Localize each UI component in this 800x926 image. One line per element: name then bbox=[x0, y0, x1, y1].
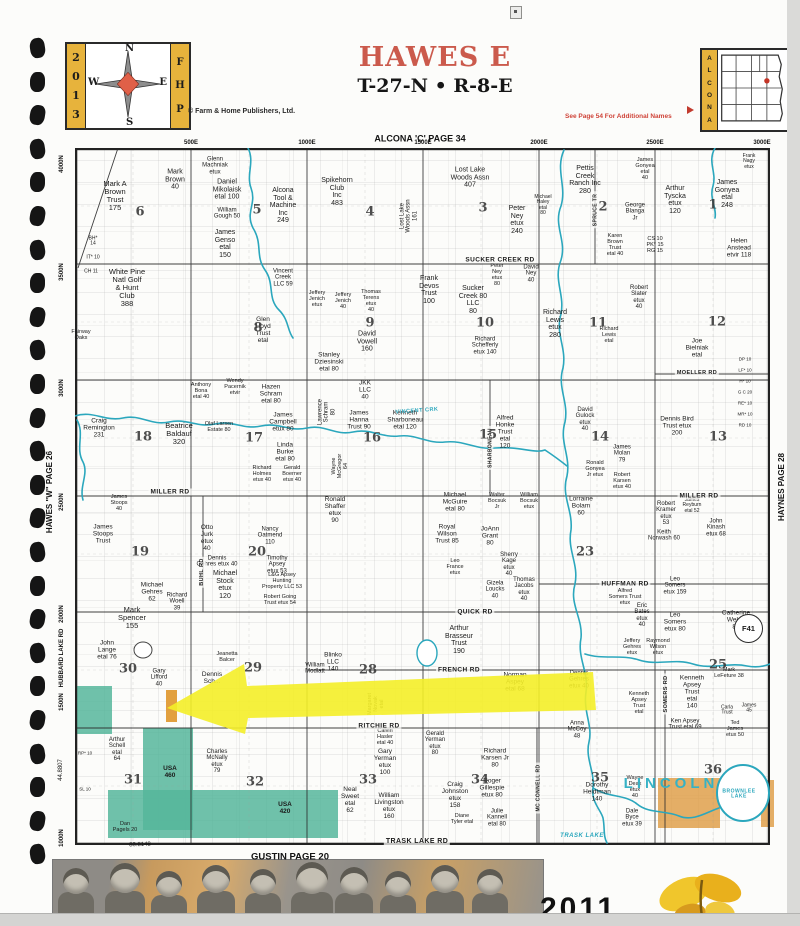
section-number: 8 bbox=[253, 321, 262, 336]
parcel-label: JeanettaBalcer bbox=[216, 652, 237, 664]
parcel-label: DanPagels 20 bbox=[113, 822, 137, 834]
binding-hole bbox=[30, 72, 45, 92]
road-label: FRENCH RD bbox=[436, 666, 482, 673]
map-labels-layer: GlennMachniaketuxMarkBrown40Mark ABrownT… bbox=[75, 148, 770, 845]
parcel-label: GaryLifford40 bbox=[151, 668, 168, 687]
parcel-label: MichaelHaleyetal80 bbox=[534, 195, 551, 217]
township-location-dot bbox=[764, 78, 769, 83]
section-number: 31 bbox=[124, 773, 142, 788]
parcel-label: DennisGehresetux 40 bbox=[569, 670, 589, 689]
county-locator: ALCONA bbox=[700, 48, 792, 132]
section-number: 19 bbox=[131, 545, 149, 560]
section-number: 4 bbox=[365, 205, 374, 220]
binding-hole bbox=[29, 642, 47, 664]
section-number: 25 bbox=[709, 658, 727, 673]
map-edge-label: 83.8148 bbox=[129, 842, 151, 849]
section-number: 5 bbox=[252, 203, 261, 218]
section-number: 3 bbox=[478, 201, 487, 216]
parcel-label: KarenBrownTrustetal 40 bbox=[607, 234, 624, 258]
parcel-label: L&G ApseyHuntingProperty LLC 53 bbox=[262, 573, 302, 591]
binding-hole bbox=[30, 777, 45, 797]
parcel-label: AnnaMcCoy48 bbox=[568, 720, 587, 739]
map-edge-label: 1000E bbox=[298, 140, 315, 146]
parcel-label: NealSweetetal62 bbox=[341, 786, 359, 814]
parcel-label: MarkSpencer155 bbox=[118, 606, 146, 630]
person-figure bbox=[340, 867, 368, 895]
parcel-label: DP 10 bbox=[739, 358, 751, 363]
township-range: T-27-N • R-8-E bbox=[320, 75, 550, 97]
parcel-label: JamesStoops40 bbox=[110, 495, 127, 513]
binding-hole bbox=[29, 104, 47, 126]
parcel-label: CarlaTrust bbox=[721, 706, 733, 717]
compass-n: N bbox=[125, 43, 134, 54]
map-edge-label: HAWES "W" PAGE 26 bbox=[46, 451, 54, 533]
parcel-label: LF* 10 bbox=[738, 369, 751, 374]
locator-pointer-icon bbox=[687, 106, 694, 114]
parcel-label: JoeBielniaketal bbox=[686, 337, 709, 358]
scan-artifact bbox=[510, 6, 522, 19]
section-number: 13 bbox=[709, 430, 727, 445]
parcel-label: KeithNorwash 60 bbox=[648, 530, 680, 543]
person-figure bbox=[385, 871, 411, 897]
parcel-label: GeorgeBlangaJr bbox=[625, 202, 645, 221]
parcel-label: MichaelStocketux120 bbox=[213, 570, 237, 600]
map-edge-label: 3000N bbox=[59, 379, 65, 397]
parcel-label: RichardSchefferlyetux 140 bbox=[472, 336, 499, 355]
road-label: MILLER RD bbox=[149, 488, 192, 495]
parcel-label: JohnKinashetux 68 bbox=[706, 518, 726, 537]
parcel-label: MR* 10 bbox=[737, 413, 752, 418]
parcel-label: RoyalWilsonTrust 85 bbox=[435, 523, 459, 544]
map-edge-label: 2500N bbox=[59, 493, 65, 511]
parcel-label: HazenSchrametal 80 bbox=[260, 383, 282, 404]
road-label: RITCHIE RD bbox=[356, 722, 401, 729]
section-number: 15 bbox=[479, 428, 497, 443]
parcel-label: BlinkoLLC140 bbox=[324, 651, 342, 672]
section-number: 11 bbox=[589, 316, 607, 331]
parcel-label: CraigRemington231 bbox=[83, 417, 114, 438]
binding-hole bbox=[29, 407, 47, 429]
parcel-label: SpikehornClubInc483 bbox=[321, 177, 353, 207]
binding-hole bbox=[29, 205, 47, 227]
section-number: 6 bbox=[135, 205, 144, 220]
parcel-label: JamesGonyeaetal40 bbox=[635, 158, 654, 182]
compass-rose: N W E S bbox=[86, 44, 170, 128]
binding-hole bbox=[29, 541, 47, 563]
copyright-line: © Farm & Home Publishers, Ltd. bbox=[188, 108, 295, 115]
binding-hole bbox=[30, 576, 45, 596]
binding-hole bbox=[30, 374, 45, 394]
parcel-label: StanleyDziesinskietal 80 bbox=[314, 351, 343, 372]
parcel-label: RP* 10 bbox=[78, 752, 92, 757]
person-figure bbox=[63, 868, 89, 894]
road-label: HUFFMAN RD bbox=[599, 580, 650, 587]
person-figure bbox=[477, 869, 503, 895]
parcel-label: MichaelMcGuireetal 80 bbox=[443, 491, 468, 512]
parcel-label: WilliamLivingstonetux160 bbox=[374, 792, 403, 820]
parcel-label: USA460 bbox=[163, 765, 177, 779]
parcel-label: PettisCreekRanch Inc280 bbox=[569, 165, 601, 195]
parcel-label: WalterBocsukJr bbox=[488, 493, 506, 511]
scan-edge-bottom bbox=[0, 913, 800, 926]
parcel-label: GlennMachniaketux bbox=[202, 156, 228, 175]
parcel-label: MichaelGehres62 bbox=[141, 581, 163, 602]
parcel-label: DanielMikolaisketal 100 bbox=[213, 179, 242, 202]
map-edge-label: HAYNES PAGE 28 bbox=[778, 453, 786, 521]
parcel-label: CH 11 bbox=[84, 269, 98, 274]
binding-hole bbox=[29, 810, 47, 832]
road-label: SOMERS RD bbox=[664, 674, 670, 715]
map-edge-label: 3500N bbox=[59, 263, 65, 281]
binding-hole bbox=[29, 440, 47, 462]
parcel-label: JamesGensoetal150 bbox=[215, 229, 236, 259]
parcel-label: JamesGonyeaetal248 bbox=[715, 179, 740, 209]
parcel-label: GeraldBoerneretux 40 bbox=[282, 466, 302, 484]
parcel-label: JulieKannelletal 80 bbox=[487, 808, 507, 827]
parcel-label: JefferyGehresetux bbox=[623, 639, 641, 657]
parcel-label: SherryKageetux40 bbox=[500, 552, 518, 578]
parcel-label: Ken ApseyTrust etal 69 bbox=[668, 719, 701, 732]
parcel-label: JamesStoopsTrust bbox=[93, 523, 113, 544]
map-edge-label: 3000E bbox=[753, 140, 770, 146]
section-number: 1 bbox=[708, 198, 717, 213]
parcel-label: MarkBrown40 bbox=[165, 169, 185, 192]
parcel-label: G C 20 bbox=[738, 391, 752, 396]
binding-hole bbox=[29, 843, 47, 865]
section-number: 18 bbox=[134, 430, 152, 445]
community-photo-strip bbox=[52, 859, 544, 917]
parcel-label: ArthurTysckaetux120 bbox=[664, 185, 686, 215]
section-number: 28 bbox=[359, 663, 377, 678]
parcel-label: White PineNatl Golf& HuntClub388 bbox=[109, 268, 145, 308]
road-label: MILLER RD bbox=[678, 492, 721, 499]
section-number: 35 bbox=[591, 771, 609, 786]
map-edge-label: 44.8807 bbox=[58, 759, 64, 781]
binding-hole bbox=[29, 507, 47, 529]
section-number: 36 bbox=[704, 763, 722, 778]
compass-box: 2013 N W E S FHP bbox=[65, 42, 191, 130]
map-edge-label: 1500N bbox=[59, 693, 65, 711]
parcel-label: RichardHolmesetux 40 bbox=[253, 466, 272, 484]
road-label: TRASK LAKE RD bbox=[384, 838, 450, 846]
parcel-label: LeoSomersetux 80 bbox=[664, 611, 686, 632]
binding-hole bbox=[29, 239, 47, 261]
parcel-label: MargaretNovaketal bbox=[368, 693, 386, 715]
parcel-label: JoAnnGrant80 bbox=[481, 525, 499, 546]
parcel-label: LeoSomersetux 159 bbox=[663, 576, 686, 595]
parcel-label: BeatriceBaldauf320 bbox=[165, 422, 193, 446]
parcel-label: LindaBurkeetal 80 bbox=[275, 441, 295, 462]
parcel-label: Dennis BirdTrust etux200 bbox=[660, 415, 694, 436]
binding-hole bbox=[30, 475, 45, 495]
road-label: MC CONNELL RD bbox=[536, 762, 541, 813]
parcel-label: RichardKarsen Jr80 bbox=[481, 747, 509, 768]
parcel-label: AlfredHonkeTrustetal120 bbox=[496, 414, 515, 449]
parcel-label: Mark ABrownTrust175 bbox=[103, 180, 126, 212]
person-figure bbox=[156, 871, 182, 897]
binding-hole bbox=[29, 743, 47, 765]
binding-hole bbox=[29, 339, 47, 361]
parcel-label: GeraldYermanetux80 bbox=[425, 731, 445, 757]
parcel-label: JamesCampbelletux 80 bbox=[269, 411, 296, 432]
water-label: BROWNLEELAKE bbox=[722, 790, 755, 801]
map-edge-label: GUSTIN PAGE 20 bbox=[251, 852, 329, 862]
parcel-label: James45 bbox=[742, 704, 757, 715]
parcel-label: ThomasJacobsetux40 bbox=[513, 577, 535, 603]
map-edge-label: 1500E bbox=[414, 140, 431, 146]
parcel-label: JefferyJenichetux bbox=[309, 291, 325, 309]
parcel-label: RobertSlateretux40 bbox=[630, 285, 648, 311]
map-edge-label: 1000N bbox=[59, 829, 65, 847]
parcel-label: VincentCreekLLC 59 bbox=[273, 268, 293, 287]
section-number: 23 bbox=[576, 545, 594, 560]
parcel-label: WendyPacerniketvir bbox=[224, 379, 245, 397]
section-number: 33 bbox=[359, 773, 377, 788]
town-label: LINCOLN bbox=[624, 776, 719, 792]
parcel-label: JamesHannaTrust 90 bbox=[347, 409, 371, 430]
parcel-label: RobertKrameretux53 bbox=[656, 501, 676, 527]
additional-names-note: See Page 54 For Additional Names bbox=[565, 113, 672, 120]
person-figure bbox=[202, 865, 230, 893]
map-edge-label: 2000E bbox=[530, 140, 547, 146]
binding-hole bbox=[29, 608, 47, 630]
water-label: TRASK LAKE bbox=[560, 833, 604, 839]
parcel-label: DaleByceetux 39 bbox=[622, 808, 642, 827]
publisher-badge: FHP bbox=[170, 44, 189, 128]
parcel-label: WilliamModlatt bbox=[305, 663, 325, 676]
parcel-label: RonaldGonyeaJr etux bbox=[585, 461, 604, 479]
parcel-label: AlconaTool &MachineInc249 bbox=[270, 187, 296, 225]
parcel-label: Olaf LarsenEstate 80 bbox=[205, 422, 233, 434]
person-figure bbox=[431, 865, 459, 893]
compass-w: W bbox=[88, 77, 99, 88]
person-figure bbox=[110, 863, 140, 893]
parcel-label: HelenAnsteadetvir 118 bbox=[727, 237, 751, 258]
parcel-label: CraigJohnstonetux158 bbox=[442, 781, 468, 809]
parcel-label: SL 10 bbox=[79, 788, 91, 793]
parcel-label: FrankNagyetux bbox=[743, 154, 756, 170]
page-title: HAWES E bbox=[320, 42, 550, 73]
parcel-label: NancyOatmend110 bbox=[258, 526, 283, 545]
compass-e: E bbox=[159, 77, 167, 88]
map-edge-label: HUBBARD LAKE RD bbox=[59, 629, 65, 688]
parcel-label: SuckerCreek 80LLC80 bbox=[459, 285, 487, 315]
parcel-label: JohnLangeetal 76 bbox=[97, 639, 117, 660]
parcel-label: JamesMolan79 bbox=[613, 444, 631, 463]
parcel-label: JKKLLC40 bbox=[359, 379, 371, 400]
parcel-label: LorraineBolam60 bbox=[569, 495, 593, 516]
person-figure bbox=[250, 869, 276, 895]
section-number: 16 bbox=[363, 431, 381, 446]
parcel-label: GizelaLoucks40 bbox=[485, 580, 504, 599]
parcel-label: DavidVowell160 bbox=[357, 331, 377, 354]
section-number: 14 bbox=[591, 430, 609, 445]
parcel-label: Lost LakeWoods Assn161 bbox=[399, 199, 418, 232]
parcel-label: ArthurBrasseurTrust190 bbox=[445, 625, 473, 655]
year-badge: 2013 bbox=[67, 44, 86, 128]
parcel-label: GaryYermanetux100 bbox=[374, 748, 396, 776]
section-number: 10 bbox=[476, 316, 494, 331]
county-grid-map bbox=[718, 50, 790, 130]
parcel-label: RichardWoell39 bbox=[167, 592, 188, 611]
county-grid-icon bbox=[718, 50, 787, 126]
section-number: 34 bbox=[471, 773, 489, 788]
parcel-label: ThomasTerensetux40 bbox=[361, 290, 381, 314]
parcel-label: EricBatesetux40 bbox=[634, 603, 649, 629]
map-edge-label: 2000N bbox=[59, 605, 65, 623]
parcel-label: DianeTyler etal bbox=[451, 814, 473, 826]
parcel-label: Robert GoingTrust etux 54 bbox=[264, 595, 297, 607]
parcel-label: NormanAspeyetal 68 bbox=[503, 671, 526, 692]
parcel-label: RD 10 bbox=[739, 424, 752, 429]
binding-hole bbox=[29, 709, 47, 731]
parcel-label: DennisSch... bbox=[202, 671, 222, 685]
parcel-label: JamesReyburnetal 52 bbox=[683, 498, 702, 514]
parcel-label: LeoFranceetux bbox=[446, 559, 463, 577]
section-number: 29 bbox=[244, 661, 262, 676]
parcel-label: KennethApseyTrustetal bbox=[629, 692, 650, 716]
county-badge: ALCONA bbox=[702, 50, 718, 130]
parcel-label: Lost LakeWoods Assn407 bbox=[451, 167, 490, 190]
map-edge-label: 2500E bbox=[646, 140, 663, 146]
parcel-label: WilliamGough 50 bbox=[214, 208, 240, 221]
scanned-plat-page: 2013 N W E S FHP HAWES E T-27-N • R-8-E … bbox=[0, 0, 800, 926]
parcel-label: RobertKarsenetux 40 bbox=[613, 473, 631, 491]
scan-edge-right bbox=[787, 0, 800, 926]
parcel-label: OttoJurketux40 bbox=[201, 524, 213, 552]
road-label: BUHL RD bbox=[200, 556, 206, 587]
section-number: 9 bbox=[365, 316, 374, 331]
parcel-label: FairwayOaks bbox=[71, 330, 90, 342]
parcel-label: PeterNeyetux80 bbox=[490, 264, 503, 288]
section-number: 17 bbox=[245, 431, 263, 446]
parcel-label: H* 10 bbox=[739, 380, 750, 385]
parcel-label: TedJamesetux 50 bbox=[726, 721, 744, 739]
binding-hole bbox=[30, 676, 45, 696]
parcel-label: ArthurSchelletal64 bbox=[109, 737, 125, 763]
map-edge-label: 4000N bbox=[59, 155, 65, 173]
binding-hole bbox=[29, 37, 47, 59]
parcel-label: IT* 10 bbox=[86, 255, 99, 260]
parcel-label: LawrenceSchram80 bbox=[317, 399, 336, 425]
road-label: SUCKER CREEK RD bbox=[463, 256, 536, 263]
parcel-label: USA420 bbox=[278, 801, 292, 815]
parcel-label: CharlesMcNallyetux79 bbox=[206, 749, 227, 775]
person-figure bbox=[296, 862, 328, 894]
binding-hole bbox=[29, 138, 47, 160]
parcel-label: RonaldShafferetux90 bbox=[325, 496, 346, 524]
parcel-label: RaymondWilsonetux bbox=[646, 639, 670, 657]
section-number: 30 bbox=[119, 662, 137, 677]
section-number: 12 bbox=[708, 315, 726, 330]
parcel-label: JefferyJenich40 bbox=[335, 293, 351, 311]
parcel-label: RE* 10 bbox=[738, 402, 752, 407]
parcel-label: BH*14 bbox=[89, 237, 98, 248]
compass-s: S bbox=[126, 117, 133, 128]
parcel-label: CS 10PK* 15RG 15 bbox=[646, 237, 663, 255]
parcel-label: RichardLewisetux280 bbox=[543, 309, 567, 339]
parcel-label: WayneMcGregor64 bbox=[332, 454, 350, 478]
parcel-label: FrankDevosTrust100 bbox=[419, 275, 439, 305]
binding-hole bbox=[30, 172, 45, 192]
binding-hole bbox=[30, 273, 45, 293]
section-number: 20 bbox=[248, 545, 266, 560]
plat-map: GlennMachniaketuxMarkBrown40Mark ABrownT… bbox=[75, 148, 770, 845]
parcel-label: PeterNeyetux240 bbox=[509, 205, 526, 235]
parcel-label: DavidNey40 bbox=[523, 264, 538, 283]
section-number: 32 bbox=[246, 775, 264, 790]
binding-hole bbox=[29, 306, 47, 328]
section-number: 2 bbox=[598, 200, 607, 215]
parcel-label: KennethApseyTrustetal140 bbox=[680, 674, 704, 709]
parcel-label: AnthonyBonaetal 40 bbox=[191, 383, 211, 401]
route-f41-badge: F41 bbox=[734, 614, 763, 643]
road-label: MOELLER RD bbox=[675, 371, 719, 377]
parcel-label: CalvinHasleretal 40 bbox=[377, 729, 394, 747]
map-edge-label: 500E bbox=[184, 140, 198, 146]
parcel-label: WilliamBocsuketux bbox=[520, 493, 538, 511]
road-label: QUICK RD bbox=[455, 608, 494, 615]
